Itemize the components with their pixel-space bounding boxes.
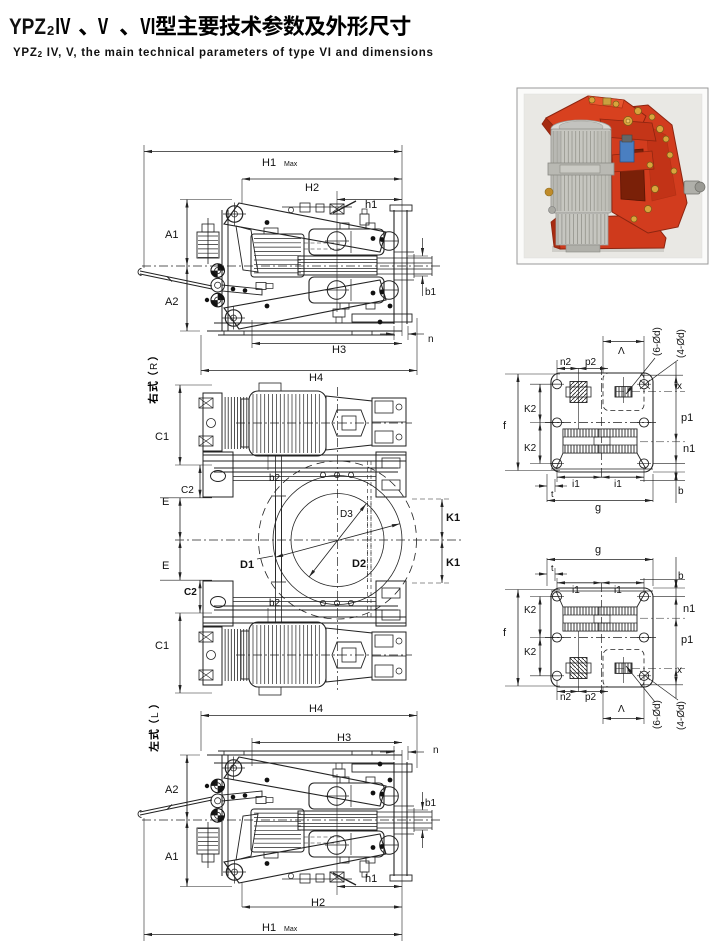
svg-text:h1: h1 xyxy=(365,873,377,885)
svg-text:H4: H4 xyxy=(309,372,323,384)
svg-text:(4-Ød): (4-Ød) xyxy=(676,329,687,358)
svg-text:b1: b1 xyxy=(425,798,437,809)
svg-text:(6-Ød): (6-Ød) xyxy=(652,700,663,729)
svg-text:H3: H3 xyxy=(337,732,351,744)
svg-text:Max: Max xyxy=(284,926,298,933)
svg-text:Λ: Λ xyxy=(618,346,625,357)
svg-text:K2: K2 xyxy=(524,443,537,454)
svg-text:C1: C1 xyxy=(155,431,169,443)
svg-text:R: R xyxy=(149,363,160,370)
svg-text:x: x xyxy=(677,381,682,392)
svg-text:YPZ: YPZ xyxy=(9,14,46,39)
svg-text:C2: C2 xyxy=(184,587,197,598)
svg-text:p2: p2 xyxy=(585,692,597,703)
svg-text:b2: b2 xyxy=(269,473,281,484)
svg-text:g: g xyxy=(595,502,601,514)
svg-text:Max: Max xyxy=(284,161,298,168)
svg-text:h1: h1 xyxy=(365,199,377,211)
svg-text:p1: p1 xyxy=(681,634,693,646)
svg-text:L: L xyxy=(150,712,161,718)
svg-text:H1: H1 xyxy=(262,922,276,934)
svg-text:D3: D3 xyxy=(340,509,353,520)
svg-text:H2: H2 xyxy=(311,897,325,909)
svg-text:x: x xyxy=(677,665,682,676)
svg-text:i1: i1 xyxy=(572,585,580,596)
svg-text:i1: i1 xyxy=(614,585,622,596)
svg-text:C2: C2 xyxy=(181,485,194,496)
svg-text:H1: H1 xyxy=(262,157,276,169)
svg-text:YPZ2 IV, V, the main technical: YPZ2 IV, V, the main technical parameter… xyxy=(13,47,434,59)
svg-text:H4: H4 xyxy=(309,703,323,715)
svg-text:b: b xyxy=(678,571,684,582)
svg-text:(4-Ød): (4-Ød) xyxy=(676,701,687,730)
svg-text:2: 2 xyxy=(47,23,54,38)
svg-text:i1: i1 xyxy=(572,479,580,490)
svg-text:A2: A2 xyxy=(165,784,178,796)
svg-text:H3: H3 xyxy=(332,344,346,356)
svg-text:K2: K2 xyxy=(524,404,537,415)
svg-text:D2: D2 xyxy=(352,558,366,570)
svg-text:C1: C1 xyxy=(155,640,169,652)
svg-text:K1: K1 xyxy=(446,512,460,524)
svg-text:b1: b1 xyxy=(425,287,437,298)
svg-text:H2: H2 xyxy=(305,182,319,194)
svg-text:g: g xyxy=(595,544,601,556)
svg-text:E: E xyxy=(162,496,169,508)
svg-text:n2: n2 xyxy=(560,692,572,703)
svg-text:E: E xyxy=(162,560,169,572)
svg-text:K1: K1 xyxy=(446,557,460,569)
svg-text:n1: n1 xyxy=(683,603,695,615)
svg-text:p2: p2 xyxy=(585,357,597,368)
svg-text:(6-Ød): (6-Ød) xyxy=(652,327,663,356)
svg-text:n1: n1 xyxy=(683,443,695,455)
svg-text:b2: b2 xyxy=(269,598,281,609)
svg-text:D1: D1 xyxy=(240,559,254,571)
svg-text:p1: p1 xyxy=(681,412,693,424)
svg-text:n2: n2 xyxy=(560,357,572,368)
svg-text:K2: K2 xyxy=(524,647,537,658)
svg-text:A1: A1 xyxy=(165,851,178,863)
svg-text:Λ: Λ xyxy=(618,704,625,715)
svg-text:A2: A2 xyxy=(165,296,178,308)
svg-text:K2: K2 xyxy=(524,605,537,616)
svg-text:b: b xyxy=(678,486,684,497)
svg-text:i1: i1 xyxy=(614,479,622,490)
svg-text:n: n xyxy=(428,334,434,345)
svg-text:n: n xyxy=(433,745,439,756)
svg-text:A1: A1 xyxy=(165,229,178,241)
